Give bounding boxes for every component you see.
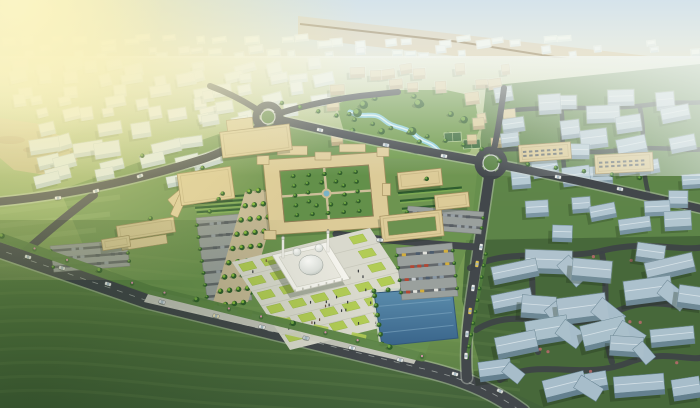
aerial-masterplan-render <box>0 0 700 408</box>
parked-car <box>458 215 462 218</box>
right-haze <box>480 56 700 176</box>
parked-car <box>444 250 448 253</box>
foreground-vignette <box>0 220 400 408</box>
flowering-tree <box>592 255 595 258</box>
blue-residential-lower-block <box>566 256 614 286</box>
parked-car <box>406 291 410 294</box>
parked-car <box>413 290 417 293</box>
parked-car <box>440 276 444 279</box>
parked-car <box>434 289 438 292</box>
parked-car <box>465 225 469 228</box>
distant-city-band-block <box>593 45 602 53</box>
distant-city-band-block <box>649 46 659 53</box>
flowering-tree <box>639 321 642 324</box>
parked-car <box>449 224 453 227</box>
distant-city-band-block <box>509 39 521 47</box>
flowering-tree <box>675 361 678 364</box>
parked-car <box>420 290 424 293</box>
blue-residential-mid-block <box>660 209 693 233</box>
distant-city-band-block <box>646 39 656 46</box>
parked-car <box>451 214 455 217</box>
parked-car <box>445 262 449 265</box>
sun-glow-core <box>0 0 240 160</box>
parked-car <box>457 225 461 228</box>
parked-car <box>472 226 476 229</box>
blue-residential-lower-block <box>666 376 700 405</box>
render-canvas <box>0 0 700 408</box>
distant-city-band-block <box>557 35 572 42</box>
flower-shrub <box>421 355 423 357</box>
car <box>463 353 468 360</box>
parked-car <box>466 215 470 218</box>
flowering-tree <box>628 320 631 323</box>
distant-city-band-block <box>690 48 700 57</box>
parked-car <box>443 214 447 217</box>
distant-city-band-block <box>544 35 558 43</box>
flowering-tree <box>546 350 549 353</box>
blue-residential-lower-block <box>608 373 665 402</box>
distant-city-band-block <box>541 45 552 55</box>
parked-car <box>441 288 445 291</box>
